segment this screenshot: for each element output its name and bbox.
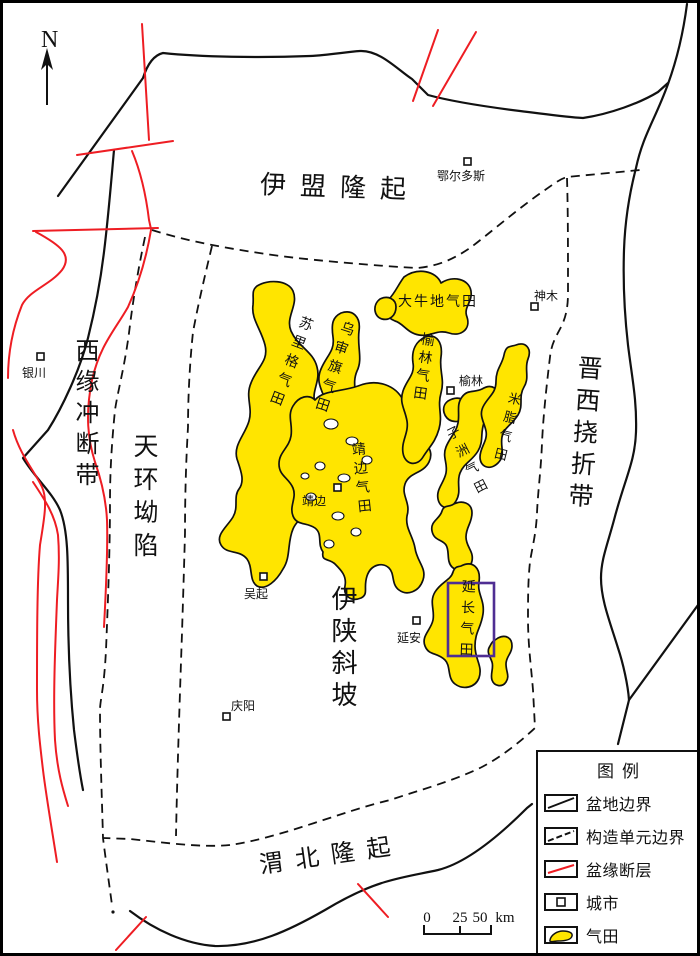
fault-nw-4 — [33, 228, 158, 231]
legend-label-gas-field: 气田 — [586, 923, 619, 947]
gas-field-shape-daniudi-west — [375, 297, 396, 319]
basin-margin-fault-icon — [544, 860, 578, 878]
gas-field-label-daniudi: 大牛地气田 — [398, 296, 478, 310]
scale-tick-25: 25 — [453, 911, 468, 926]
unit-boundary-west-inner — [176, 246, 212, 836]
legend-row-basin-margin-fault: 盆缘断层 — [538, 852, 698, 885]
scale-tick-50: 50 — [473, 911, 488, 926]
fault-south-2 — [358, 884, 388, 917]
north-arrow-icon — [41, 48, 53, 105]
fault-ne-1 — [413, 30, 438, 101]
unit-label-tianhuan-depression: 天环坳陷 — [131, 433, 156, 565]
legend-label-basin-margin-fault: 盆缘断层 — [586, 857, 652, 881]
gas-field-patch-icon — [544, 926, 578, 944]
structural-unit-boundary-icon — [544, 827, 578, 845]
legend-label-basin-boundary: 盆地边界 — [586, 791, 652, 815]
legend: 图例 盆地边界 构造单元边界 盆缘断层 城市 — [536, 750, 700, 956]
gas-field-shape-zizhou-south — [432, 502, 473, 570]
city-label-yanan: 延安 — [397, 632, 421, 644]
legend-label-city: 城市 — [586, 890, 619, 914]
legend-row-structural-unit-boundary: 构造单元边界 — [538, 819, 698, 852]
city-label-shenmu: 神木 — [534, 290, 558, 302]
city-label-eerduosi: 鄂尔多斯 — [437, 170, 485, 182]
fault-west-mid — [33, 482, 68, 806]
city-label-yulin: 榆林 — [459, 375, 483, 387]
city-marker-wuqi — [260, 573, 267, 580]
unit-label-yimeng-uplift: 伊盟隆起 — [260, 172, 421, 204]
legend-title: 图例 — [546, 757, 698, 782]
fault-nw-1 — [142, 24, 149, 140]
legend-row-gas-field: 气田 — [538, 918, 698, 951]
legend-row-basin-boundary: 盆地边界 — [538, 786, 698, 819]
city-label-yinchuan: 银川 — [22, 367, 46, 379]
legend-row-city: 城市 — [538, 885, 698, 918]
scale-bar — [424, 925, 491, 934]
scale-tick-0: 0 — [423, 911, 431, 926]
scale-unit: km — [495, 911, 514, 926]
city-marker-eerduosi — [464, 158, 471, 165]
gas-field-label-yanchang: 延长气田 — [457, 579, 474, 663]
city-marker-yanan — [413, 617, 420, 624]
city-label-jingbian: 靖边 — [302, 495, 326, 507]
city-label-wuqi: 吴起 — [244, 588, 268, 600]
unit-boundary-end-dot — [111, 910, 114, 913]
unit-label-western-margin-thrust-belt: 西缘冲断带 — [72, 338, 96, 493]
city-marker-qingyang — [223, 713, 230, 720]
city-label-qingyang: 庆阳 — [231, 700, 255, 712]
gas-field-shape-yanchang-east — [488, 636, 512, 685]
legend-label-structural-unit-boundary: 构造单元边界 — [586, 824, 685, 848]
city-marker-jingbian — [334, 484, 341, 491]
fault-nw-3 — [132, 151, 151, 229]
fault-south-1 — [116, 917, 146, 950]
unit-boundary-south — [103, 838, 230, 846]
basin-boundary-east-branch — [629, 605, 697, 700]
basin-boundary-east — [601, 4, 687, 744]
north-label: N — [41, 28, 58, 52]
city-marker-yinchuan — [37, 353, 44, 360]
unit-label-yishan-slope: 伊陕斜坡 — [329, 585, 355, 713]
geologic-map: N 伊盟隆起 西缘冲断带 天环坳陷 晋西挠折带 伊陕斜坡 渭北隆起 鄂尔多斯 神… — [0, 0, 700, 956]
city-marker-yulin — [447, 387, 454, 394]
basin-boundary-line-icon — [544, 794, 578, 812]
city-square-icon — [544, 893, 578, 911]
city-marker-shenmu — [531, 303, 538, 310]
fault-ne-2 — [433, 32, 476, 106]
